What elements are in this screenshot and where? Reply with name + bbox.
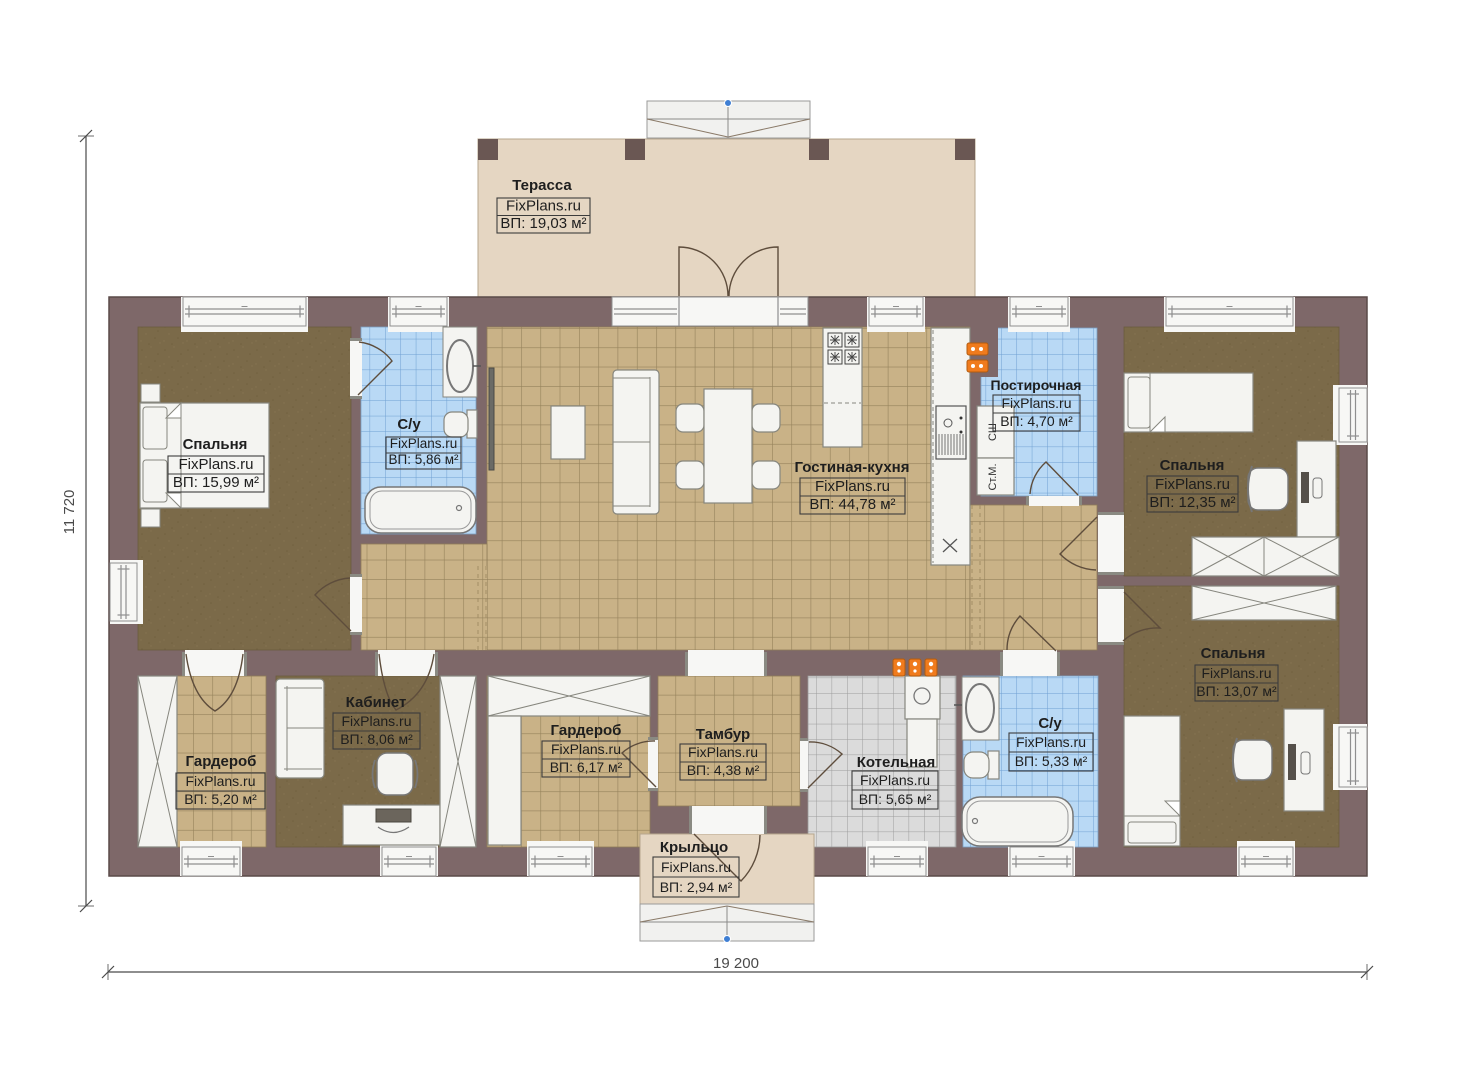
svg-text:ВП: 13,07 м²: ВП: 13,07 м²: [1196, 683, 1277, 699]
svg-text:19 200: 19 200: [713, 955, 759, 972]
svg-text:ВП: 2,94 м²: ВП: 2,94 м²: [660, 879, 733, 895]
svg-text:Гардероб: Гардероб: [551, 722, 622, 739]
svg-text:FixPlans.ru: FixPlans.ru: [185, 773, 255, 789]
svg-text:ВП: 15,99 м²: ВП: 15,99 м²: [173, 474, 259, 491]
svg-text:FixPlans.ru: FixPlans.ru: [688, 744, 758, 760]
svg-text:FixPlans.ru: FixPlans.ru: [1001, 395, 1071, 411]
svg-text:ВП: 12,35 м²: ВП: 12,35 м²: [1149, 494, 1235, 511]
svg-text:FixPlans.ru: FixPlans.ru: [178, 456, 253, 473]
svg-text:Кабинет: Кабинет: [346, 694, 407, 711]
svg-text:Спальня: Спальня: [183, 436, 248, 453]
svg-text:Спальня: Спальня: [1160, 457, 1225, 474]
svg-text:ВП: 44,78 м²: ВП: 44,78 м²: [809, 496, 895, 513]
svg-text:FixPlans.ru: FixPlans.ru: [341, 713, 411, 729]
svg-text:Спальня: Спальня: [1201, 645, 1266, 662]
svg-text:Гардероб: Гардероб: [186, 753, 257, 770]
svg-text:С/у: С/у: [1038, 715, 1062, 732]
svg-text:Терасса: Терасса: [512, 177, 572, 194]
svg-text:С/у: С/у: [397, 416, 421, 433]
svg-text:ВП: 5,65 м²: ВП: 5,65 м²: [859, 791, 932, 807]
svg-text:FixPlans.ru: FixPlans.ru: [661, 859, 731, 875]
svg-text:Гостиная-кухня: Гостиная-кухня: [795, 459, 910, 476]
svg-text:FixPlans.ru: FixPlans.ru: [860, 772, 930, 788]
svg-text:FixPlans.ru: FixPlans.ru: [390, 436, 458, 451]
svg-text:Котельная: Котельная: [857, 754, 936, 771]
svg-text:FixPlans.ru: FixPlans.ru: [551, 741, 621, 757]
svg-text:FixPlans.ru: FixPlans.ru: [1016, 734, 1086, 750]
svg-text:ВП: 4,70 м²: ВП: 4,70 м²: [1000, 413, 1073, 429]
svg-text:Тамбур: Тамбур: [696, 726, 750, 743]
svg-text:Постирочная: Постирочная: [991, 377, 1082, 393]
svg-text:FixPlans.ru: FixPlans.ru: [1155, 476, 1230, 493]
svg-text:FixPlans.ru: FixPlans.ru: [1201, 665, 1271, 681]
svg-text:FixPlans.ru: FixPlans.ru: [815, 478, 890, 495]
svg-text:ВП: 4,38 м²: ВП: 4,38 м²: [687, 762, 760, 778]
svg-text:ВП: 19,03 м²: ВП: 19,03 м²: [500, 215, 586, 232]
svg-text:ВП: 5,20 м²: ВП: 5,20 м²: [184, 791, 257, 807]
svg-text:ВП: 8,06 м²: ВП: 8,06 м²: [340, 731, 413, 747]
svg-text:Крыльцо: Крыльцо: [660, 839, 728, 856]
svg-text:ВП: 5,86 м²: ВП: 5,86 м²: [388, 452, 459, 467]
svg-text:FixPlans.ru: FixPlans.ru: [506, 198, 581, 215]
svg-text:11 720: 11 720: [61, 490, 78, 535]
svg-text:ВП: 5,33 м²: ВП: 5,33 м²: [1015, 753, 1088, 769]
svg-text:ВП: 6,17 м²: ВП: 6,17 м²: [550, 759, 623, 775]
svg-text:Ст.М.: Ст.М.: [987, 463, 999, 490]
